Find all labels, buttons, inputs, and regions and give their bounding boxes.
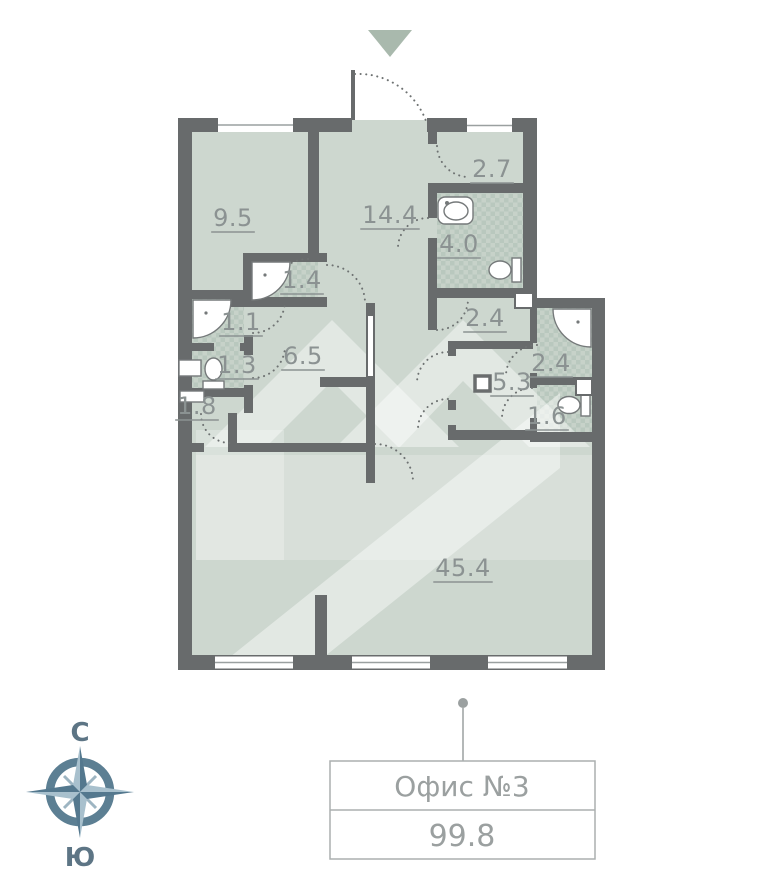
unit-area: 99.8	[429, 819, 496, 854]
room-area-label-2-7: 2.7	[472, 155, 512, 183]
compass-south-label: Ю	[65, 843, 96, 873]
room-area-label-2-4-shower: 2.4	[531, 349, 571, 377]
room-area-label-1-3: 1.3	[217, 351, 257, 379]
room-area-label-9-5: 9.5	[213, 204, 253, 232]
entrance-arrow-icon	[368, 30, 412, 57]
room-area-label-1-1: 1.1	[221, 308, 261, 336]
unit-name: Офис №3	[394, 770, 529, 803]
room-area-label-1-6: 1.6	[527, 402, 567, 430]
sink-4-0	[438, 197, 473, 224]
floorplan-page: 9.514.42.74.01.41.11.36.51.82.42.45.31.6…	[0, 0, 760, 891]
floor-plan-svg: 9.514.42.74.01.41.11.36.51.82.42.45.31.6…	[0, 0, 760, 891]
entrance-opening	[352, 120, 427, 134]
room-area-label-6-5: 6.5	[283, 342, 323, 370]
room-area-label-4-0: 4.0	[439, 230, 479, 258]
entrance-door-leaf	[351, 70, 355, 120]
compass-north-label: С	[70, 718, 89, 748]
room-area-label-1-8: 1.8	[177, 392, 217, 420]
room-area-label-14-4: 14.4	[362, 201, 417, 229]
vent-box-left	[179, 360, 201, 376]
compass: С Ю	[26, 718, 134, 873]
compass-star	[26, 746, 134, 838]
floor-plan: 9.514.42.74.01.41.11.36.51.82.42.45.31.6…	[175, 30, 605, 670]
room-area-label-45-4: 45.4	[435, 554, 490, 582]
unit-callout: Офис №3 99.8	[330, 698, 595, 859]
room-area-label-1-4: 1.4	[282, 266, 322, 294]
pocket-door	[368, 316, 373, 376]
shaft-icon-5-3	[475, 376, 490, 391]
room-area-label-5-3: 5.3	[492, 368, 532, 396]
leader-dot	[458, 698, 468, 708]
room-area-label-2-4-hall: 2.4	[465, 304, 505, 332]
